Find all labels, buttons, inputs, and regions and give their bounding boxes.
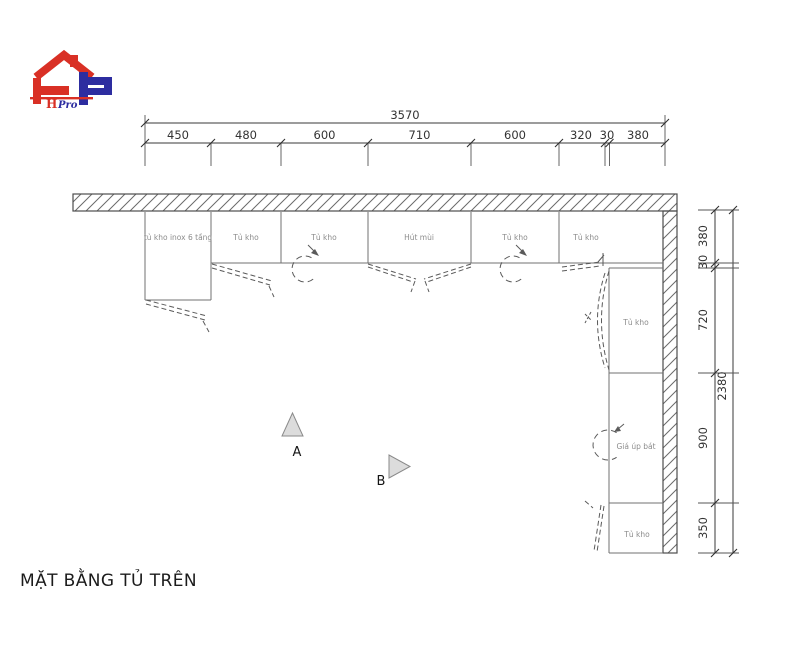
section-marker-a-triangle: [282, 413, 303, 436]
logo-brand-rest: Pro: [57, 100, 78, 111]
logo: H Pro: [30, 55, 112, 111]
cabinet-label-tu-kho-2: Tủ kho: [310, 233, 337, 242]
door-swing-tu-kho-1: [212, 264, 274, 297]
double-door-swing-hut-mui: [368, 264, 471, 292]
cabinet-label-tu-kho-4: Tủ kho: [572, 233, 599, 242]
dim-top-seg-320: 320: [570, 128, 592, 142]
floorplan-canvas: H Pro: [0, 0, 800, 656]
dim-top-seg-380: 380: [627, 128, 649, 142]
dim-right-seg-350: 350: [696, 517, 710, 539]
dim-top-seg-600a: 600: [314, 128, 336, 142]
section-markers: A B: [282, 413, 410, 489]
dim-right-seg-720: 720: [696, 309, 710, 331]
right-wall: [663, 211, 677, 553]
dim-top-seg-480: 480: [235, 128, 257, 142]
logo-p-bowl-bottom: [79, 88, 112, 95]
section-marker-b-triangle: [389, 455, 410, 478]
right-column-dividers: [609, 268, 663, 553]
top-dimension-labels: 3570 450 480 600 710 600 320 30 380: [167, 108, 649, 142]
cabinet-label-hut-mui: Hút mùi: [404, 233, 434, 242]
logo-brand-h: H: [46, 97, 57, 111]
door-swing-inox-rack: [146, 300, 209, 332]
dim-top-seg-30: 30: [600, 128, 615, 142]
cabinet-label-tu-kho-right-2: Tủ kho: [623, 530, 650, 539]
cabinet-label-tu-kho-1: Tủ kho: [232, 233, 259, 242]
door-swing-symbols: [146, 245, 624, 552]
dim-top-seg-710: 710: [409, 128, 431, 142]
door-swing-right-tu-kho-1: [585, 271, 609, 370]
cabinet-label-tu-kho-right-1: Tủ kho: [622, 318, 649, 327]
cabinet-label-inox-rack: tủ kho inox 6 tầng: [144, 233, 213, 242]
door-swing-corner-cabinet: [562, 253, 604, 271]
drawing-title: MẶT BẰNG TỦ TRÊN: [20, 567, 197, 591]
dim-top-seg-600b: 600: [504, 128, 526, 142]
dim-right-total: 2380: [715, 371, 729, 400]
cabinet-label-tu-kho-3: Tủ kho: [501, 233, 528, 242]
cabinet-inox-rack-outline: [145, 212, 211, 300]
dim-top-total: 3570: [390, 108, 419, 122]
door-swing-right-tu-kho-2: [585, 501, 604, 552]
cabinet-labels: tủ kho inox 6 tầng Tủ kho Tủ kho Hút mùi…: [144, 233, 656, 539]
walls: [73, 194, 677, 553]
dim-right-seg-380: 380: [696, 225, 710, 247]
dim-top-seg-450: 450: [167, 128, 189, 142]
logo-h-crossbar: [33, 86, 69, 95]
section-marker-b-label: B: [377, 474, 386, 489]
logo-chimney-icon: [70, 55, 78, 67]
dim-right-seg-30: 30: [696, 255, 710, 270]
right-dimension-labels: 380 30 720 900 350 2380: [696, 225, 729, 539]
cabinet-label-gia-up-bat: Giá úp bát: [616, 442, 655, 451]
dim-right-seg-900: 900: [696, 427, 710, 449]
top-wall: [73, 194, 677, 211]
section-marker-a-label: A: [293, 445, 302, 460]
